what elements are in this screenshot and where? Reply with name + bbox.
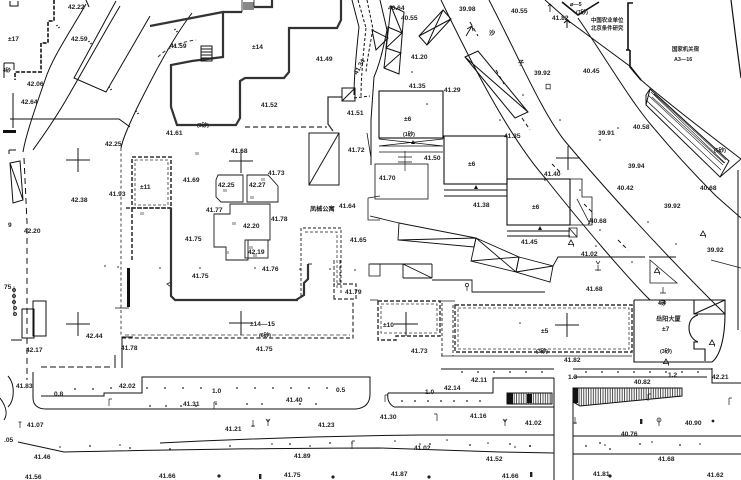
svg-text:±10: ±10 [383,322,394,329]
svg-text:41.35: 41.35 [409,83,426,90]
svg-text:42.59: 42.59 [71,36,88,43]
svg-text:42.14: 42.14 [444,385,461,392]
svg-text:岳阳大厦: 岳阳大厦 [656,315,682,323]
svg-text:(6砂): (6砂) [259,331,271,339]
svg-text:41.79: 41.79 [345,289,362,296]
svg-text:42.27: 42.27 [249,182,266,189]
svg-text:41.35: 41.35 [504,133,521,140]
svg-text:41.76: 41.76 [262,266,279,273]
svg-text:42.25: 42.25 [218,182,235,189]
svg-text:40.55: 40.55 [511,8,528,15]
svg-text:40.64: 40.64 [388,5,405,12]
svg-text:41.16: 41.16 [470,413,487,420]
svg-text:41.59: 41.59 [170,43,187,50]
svg-text:39.92: 39.92 [707,247,724,254]
svg-text:±14: ±14 [252,44,263,51]
svg-text:42.20: 42.20 [24,228,41,235]
svg-text:(3砂): (3砂) [197,121,209,129]
svg-text:41.87: 41.87 [391,471,408,478]
svg-text:1.0: 1.0 [425,389,434,396]
svg-text:沙: 沙 [489,30,496,37]
svg-text:41.29: 41.29 [444,87,461,94]
svg-text:(3砂): (3砂) [536,347,548,355]
svg-text:±7: ±7 [662,326,670,333]
svg-text:41.02: 41.02 [581,251,598,258]
svg-text:(5砂): (5砂) [714,146,726,154]
svg-text:42.17: 42.17 [26,347,43,354]
svg-text:41.21: 41.21 [225,426,242,433]
svg-text:42.22: 42.22 [68,4,85,11]
svg-text:41.75: 41.75 [284,472,301,479]
svg-text:41.83: 41.83 [16,383,33,390]
svg-text:子: 子 [518,60,525,67]
svg-text:41.62: 41.62 [707,472,724,479]
svg-text:40.45: 40.45 [583,68,600,75]
svg-text:41.52: 41.52 [261,102,278,109]
svg-text:41.68: 41.68 [231,148,248,155]
svg-text:41.75: 41.75 [185,236,202,243]
svg-text:4砂: 4砂 [658,299,667,307]
svg-text:41.70: 41.70 [379,175,396,182]
svg-text:41.61: 41.61 [166,130,183,137]
svg-text:41.56: 41.56 [25,474,42,480]
svg-text:±11: ±11 [140,184,151,191]
svg-text:±6: ±6 [468,161,476,168]
svg-text:42.44: 42.44 [86,333,103,340]
svg-text:41.02: 41.02 [525,420,542,427]
svg-text:4砂: 4砂 [3,67,11,74]
svg-text:41.45: 41.45 [521,239,538,246]
svg-text:75: 75 [4,284,12,291]
svg-text:40.90: 40.90 [685,420,702,427]
svg-text:41.20: 41.20 [411,54,428,61]
svg-text:39.98: 39.98 [459,6,476,13]
svg-text:42.02: 42.02 [119,383,136,390]
svg-text:41.31: 41.31 [183,401,200,408]
svg-text:41.66: 41.66 [159,473,176,480]
svg-text:41.64: 41.64 [339,203,356,210]
svg-text:42.11: 42.11 [471,377,487,384]
svg-text:42.19: 42.19 [248,249,265,256]
svg-text:41.38: 41.38 [473,202,490,209]
svg-text:39.92: 39.92 [664,203,681,210]
svg-text:41.68: 41.68 [586,286,603,293]
svg-text:39.94: 39.94 [628,163,645,170]
svg-text:(7砂): (7砂) [576,8,588,16]
svg-text:中国农业单位: 中国农业单位 [591,16,624,24]
svg-text:40.55: 40.55 [401,15,418,22]
svg-text:40.58: 40.58 [633,124,650,131]
svg-text:41.49: 41.49 [316,56,333,63]
svg-text:凤械公寓: 凤械公寓 [310,205,335,213]
svg-text:国家机关宿: 国家机关宿 [672,45,700,53]
svg-text:41.72: 41.72 [348,147,365,154]
svg-text:42.25: 42.25 [105,141,122,148]
svg-text:40.42: 40.42 [617,185,634,192]
svg-text:40.68: 40.68 [590,218,607,225]
svg-text:1.2: 1.2 [668,372,677,379]
svg-text:41.77: 41.77 [206,207,223,214]
svg-text:40.82: 40.82 [634,379,651,386]
svg-text:41.30: 41.30 [380,414,397,421]
svg-text:42.38: 42.38 [71,197,88,204]
svg-text:41.73: 41.73 [411,348,428,355]
svg-text:±6: ±6 [404,116,412,123]
svg-text:42.21: 42.21 [712,374,729,381]
svg-text:41.73: 41.73 [268,170,285,177]
svg-text:42.64: 42.64 [21,99,38,106]
svg-text:41.40: 41.40 [544,171,561,178]
svg-text:41.65: 41.65 [350,237,367,244]
svg-text:42.20: 42.20 [243,223,260,230]
svg-text:41.78: 41.78 [121,345,138,352]
svg-text:41.34: 41.34 [353,58,367,76]
svg-text:42.06: 42.06 [27,81,44,88]
svg-text:41.52: 41.52 [486,456,503,463]
svg-text:41.51: 41.51 [347,110,364,117]
svg-text:±6: ±6 [532,204,540,211]
svg-text:⌀—5: ⌀—5 [570,2,582,8]
svg-text:口: 口 [545,84,551,91]
svg-text:41.82: 41.82 [564,357,581,364]
svg-text:±5: ±5 [541,328,549,335]
svg-text:41.75: 41.75 [192,273,209,280]
svg-text:(1砂): (1砂) [403,130,415,138]
svg-text:41.46: 41.46 [34,454,51,461]
svg-text:41.50: 41.50 [424,155,441,162]
svg-text:1.0: 1.0 [212,388,221,395]
svg-text:41.75: 41.75 [256,346,273,353]
svg-text:41.02: 41.02 [414,445,431,452]
svg-text:±14—15: ±14—15 [250,321,275,328]
svg-text:41.93: 41.93 [109,191,126,198]
svg-text:39.91: 39.91 [598,130,615,137]
svg-text:41.78: 41.78 [271,216,288,223]
svg-text:40.68: 40.68 [700,185,717,192]
svg-text:41.07: 41.07 [27,422,44,429]
svg-text:41.23: 41.23 [318,422,335,429]
svg-text:±17: ±17 [8,36,19,43]
svg-text:A3—16: A3—16 [674,57,692,63]
svg-text:41.69: 41.69 [183,177,200,184]
svg-text:41.68: 41.68 [658,456,675,463]
svg-text:1.3: 1.3 [568,374,577,381]
svg-text:北京条件研究: 北京条件研究 [591,24,624,32]
svg-text:41.81: 41.81 [593,471,610,478]
svg-text:39.92: 39.92 [534,70,551,77]
svg-text:0.5: 0.5 [336,387,345,394]
svg-text:41.66: 41.66 [502,473,519,480]
svg-text:41.89: 41.89 [294,453,311,460]
svg-text:40.76: 40.76 [621,431,638,438]
svg-text:9: 9 [8,222,12,229]
svg-text:0.8: 0.8 [54,391,63,398]
svg-text:.05: .05 [4,437,13,444]
svg-text:(3砂): (3砂) [660,347,672,355]
svg-text:41.82: 41.82 [552,15,569,22]
svg-text:41.40: 41.40 [286,397,303,404]
